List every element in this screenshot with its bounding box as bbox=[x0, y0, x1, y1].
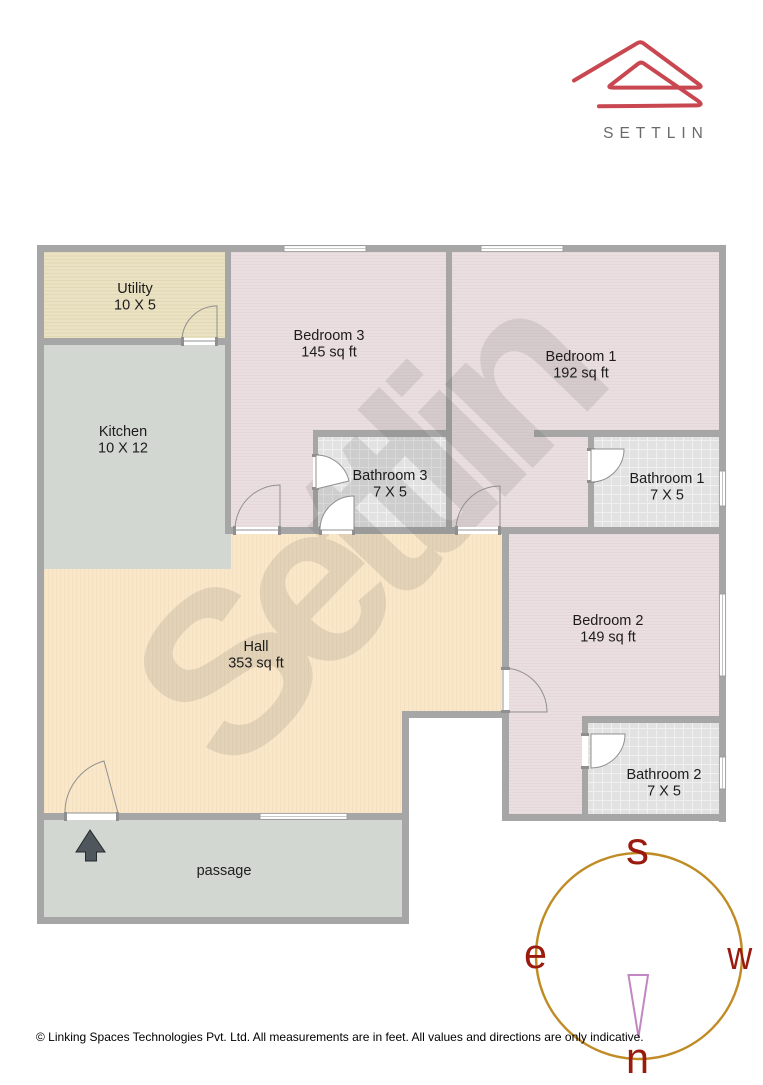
svg-text:7 X 5: 7 X 5 bbox=[647, 784, 681, 800]
svg-text:353 sq ft: 353 sq ft bbox=[228, 656, 284, 672]
svg-text:SETTLIN: SETTLIN bbox=[603, 125, 709, 142]
svg-text:Bathroom 3: Bathroom 3 bbox=[353, 468, 428, 484]
svg-text:Hall: Hall bbox=[244, 639, 269, 655]
svg-text:Kitchen: Kitchen bbox=[99, 424, 147, 440]
svg-text:Bathroom 1: Bathroom 1 bbox=[630, 471, 705, 487]
svg-text:7 X 5: 7 X 5 bbox=[373, 485, 407, 501]
svg-text:e: e bbox=[524, 930, 547, 977]
svg-text:10 X 12: 10 X 12 bbox=[98, 441, 148, 457]
svg-text:Bedroom 3: Bedroom 3 bbox=[294, 328, 365, 344]
svg-text:w: w bbox=[726, 934, 752, 978]
svg-text:Bathroom 2: Bathroom 2 bbox=[627, 767, 702, 783]
svg-text:Utility: Utility bbox=[117, 281, 153, 297]
svg-text:145 sq ft: 145 sq ft bbox=[301, 345, 357, 361]
svg-text:Bedroom 2: Bedroom 2 bbox=[573, 613, 644, 629]
svg-text:s: s bbox=[626, 822, 649, 874]
svg-text:Bedroom 1: Bedroom 1 bbox=[546, 349, 617, 365]
svg-text:192 sq ft: 192 sq ft bbox=[553, 366, 609, 382]
svg-text:passage: passage bbox=[197, 863, 252, 879]
svg-text:© Linking Spaces Technologies: © Linking Spaces Technologies Pvt. Ltd. … bbox=[36, 1030, 644, 1044]
svg-text:149 sq ft: 149 sq ft bbox=[580, 630, 636, 646]
svg-text:10 X 5: 10 X 5 bbox=[114, 298, 156, 314]
svg-text:7 X 5: 7 X 5 bbox=[650, 488, 684, 504]
